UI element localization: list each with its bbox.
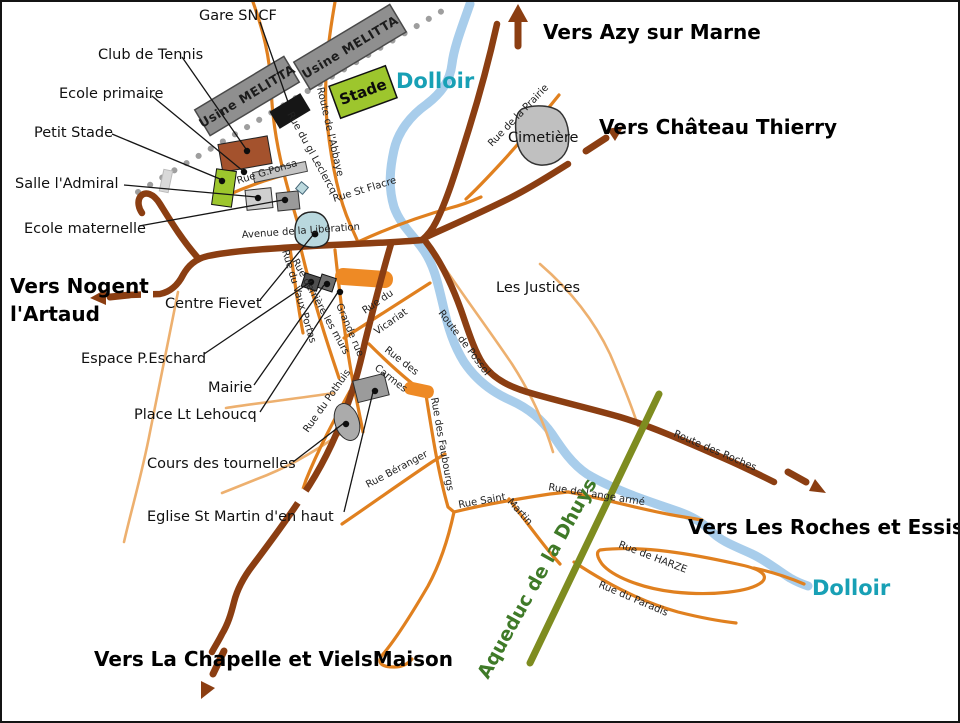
marker-dot (282, 197, 288, 203)
place-label-eglise: Eglise St Martin d'en haut (147, 509, 334, 525)
river-label-top: Dolloir (396, 69, 475, 93)
place-label-lehoucq: Place Lt Lehoucq (134, 407, 257, 423)
direction-label-azy: Vers Azy sur Marne (543, 20, 761, 44)
river-label-right: Dolloir (812, 576, 891, 600)
marker-dot (372, 388, 378, 394)
place-label-centre-fievet: Centre Fievet (165, 296, 262, 312)
place-label-gare: Gare SNCF (199, 8, 277, 24)
marker-dot (219, 178, 225, 184)
place-label-tournelles: Cours des tournelles (147, 456, 296, 472)
marker-dot (337, 289, 343, 295)
place-label-club-tennis: Club de Tennis (98, 47, 203, 63)
direction-label-chapelle: Vers La Chapelle et VielsMaison (94, 647, 453, 671)
place-label-mairie: Mairie (208, 380, 252, 396)
place-label-salle-admiral: Salle l'Admiral (15, 176, 119, 192)
building-stade: Stade (329, 66, 397, 118)
building-petit-stade (212, 169, 237, 207)
street-label-paradis: Rue du Paradis (597, 580, 670, 619)
street-label-route-roches: Route des Roches (672, 429, 758, 474)
street-label-saint-2: Martin (505, 497, 535, 528)
place-label-ecole-primaire: Ecole primaire (59, 86, 163, 102)
place-label-petit-stade: Petit Stade (34, 125, 113, 141)
street-label-harze: Rue de HARZE (617, 540, 688, 576)
village-map: Usine MELITTA Usine MELITTA Stade (0, 0, 960, 723)
plaza-carmes (403, 381, 435, 400)
marker-dot (244, 148, 250, 154)
bridge-gap-south (298, 491, 306, 503)
marker-dot (255, 195, 261, 201)
road-faubourgs-south (380, 512, 454, 667)
place-label-cimetiere: Cimetière (508, 130, 578, 146)
direction-label-nogent-2: l'Artaud (10, 302, 100, 326)
arrow-azy (508, 4, 528, 46)
place-label-les-justices: Les Justices (496, 280, 580, 296)
street-label-saint-1: Rue Saint (458, 492, 507, 511)
direction-label-chateau: Vers Château Thierry (599, 115, 837, 139)
arrow-roches (788, 472, 826, 493)
place-label-espace-eschard: Espace P.Eschard (81, 351, 206, 367)
place-label-ecole-maternelle: Ecole maternelle (24, 221, 146, 237)
direction-label-roches: Vers Les Roches et Essises (688, 515, 958, 539)
map-canvas: Usine MELITTA Usine MELITTA Stade (2, 2, 958, 721)
marker-dot (324, 281, 330, 287)
direction-label-nogent-1: Vers Nogent (10, 274, 149, 298)
road-hook-north (139, 193, 198, 258)
street-label-vicariat-2: Vicariat (372, 307, 409, 338)
marker-dot (343, 421, 349, 427)
